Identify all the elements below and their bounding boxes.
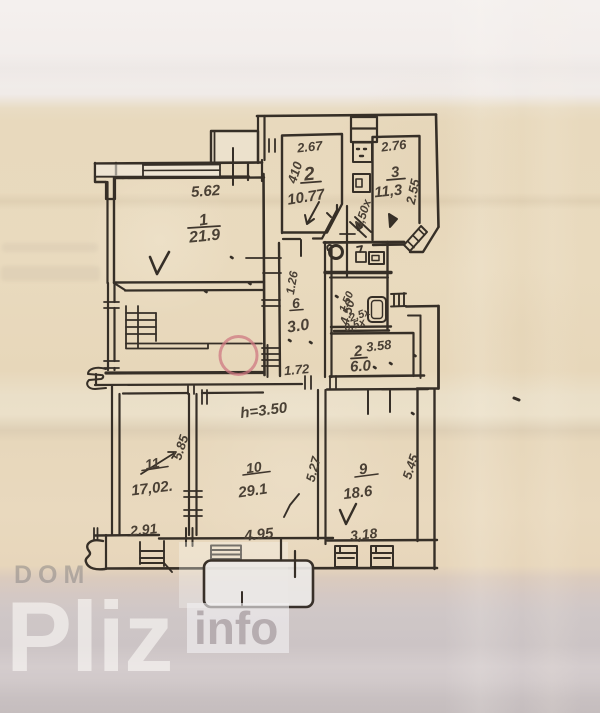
- svg-text:h=3.50: h=3.50: [239, 399, 288, 422]
- svg-text:4,50x: 4,50x: [351, 196, 374, 231]
- svg-text:5.62: 5.62: [190, 182, 221, 201]
- svg-text:18.6: 18.6: [342, 483, 374, 504]
- svg-text:6: 6: [291, 295, 301, 312]
- svg-text:3.58: 3.58: [365, 337, 393, 355]
- svg-text:5.27: 5.27: [303, 454, 324, 483]
- svg-text:2.67: 2.67: [295, 138, 323, 156]
- svg-text:10.77: 10.77: [286, 186, 326, 209]
- svg-text:1.72: 1.72: [283, 361, 310, 378]
- svg-text:21.9: 21.9: [187, 226, 221, 246]
- svg-text:17,02.: 17,02.: [130, 478, 173, 500]
- svg-text:29.1: 29.1: [236, 481, 268, 502]
- svg-text:4.95: 4.95: [242, 525, 274, 545]
- svg-text:3.0: 3.0: [286, 316, 311, 336]
- svg-text:3,18: 3,18: [349, 525, 378, 544]
- svg-text:11,3: 11,3: [373, 181, 403, 201]
- svg-text:1.26: 1.26: [283, 270, 301, 296]
- svg-text:2.76: 2.76: [379, 137, 408, 155]
- svg-text:6.0: 6.0: [349, 357, 372, 375]
- svg-text:2.91: 2.91: [128, 520, 158, 539]
